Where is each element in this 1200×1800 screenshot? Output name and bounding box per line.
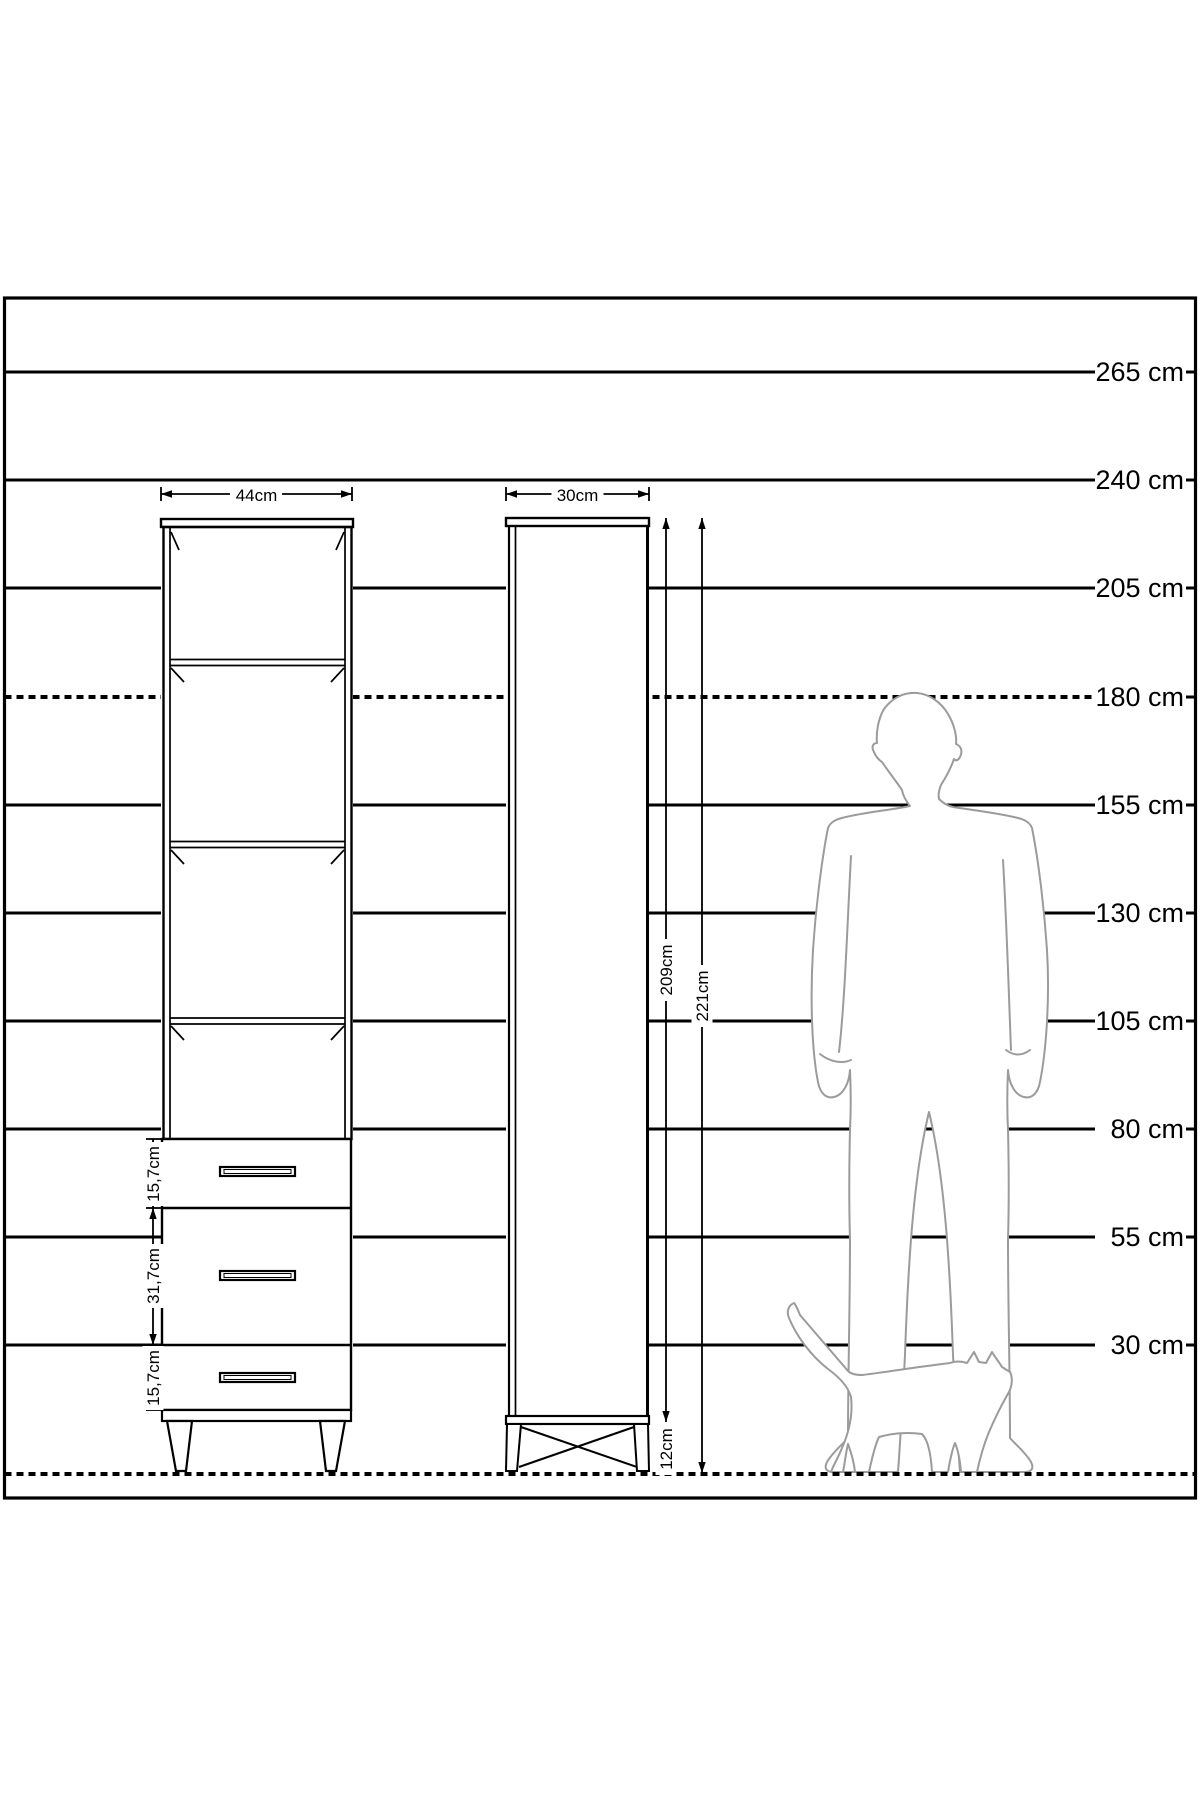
height-label-55: 55 cm [1110,1222,1184,1252]
height-label-80: 80 cm [1110,1114,1184,1144]
drawer-height-dimensions: 15,7cm 31,7cm 15,7cm [143,1139,164,1410]
side-top-panel [506,518,649,526]
furniture-dimension-diagram: 265 cm 240 cm 205 cm 180 cm 155 cm 130 c… [0,0,1200,1800]
height-label-130: 130 cm [1095,898,1184,928]
cabinet-leg [634,1424,649,1471]
total-height-label: 221cm [693,970,712,1021]
leg-height-dimension: 12cm [656,1423,677,1475]
side-bottom-panel [506,1416,649,1424]
drawer-top-height-label: 15,7cm [144,1146,163,1202]
cabinet-bottom-panel [162,1410,351,1421]
leg-height-label: 12cm [657,1428,676,1470]
carcass-height-label: 209cm [657,944,676,995]
side-cabinet-fill [506,518,649,1424]
drawer-middle-height-label: 31,7cm [144,1248,163,1304]
height-label-155: 155 cm [1095,790,1184,820]
drawer-bottom-height-label: 15,7cm [144,1350,163,1406]
height-label-240: 240 cm [1095,465,1184,495]
depth-label: 30cm [557,486,599,505]
height-label-30: 30 cm [1110,1330,1184,1360]
diagram-canvas: 265 cm 240 cm 205 cm 180 cm 155 cm 130 c… [0,0,1200,1800]
height-label-265: 265 cm [1095,357,1184,387]
height-label-180: 180 cm [1095,682,1184,712]
front-view-cabinet [161,519,353,1471]
side-view-cabinet [506,518,649,1471]
height-label-105: 105 cm [1095,1006,1184,1036]
front-width-label: 44cm [236,486,278,505]
height-label-205: 205 cm [1095,573,1184,603]
drawer-box [162,1139,351,1410]
